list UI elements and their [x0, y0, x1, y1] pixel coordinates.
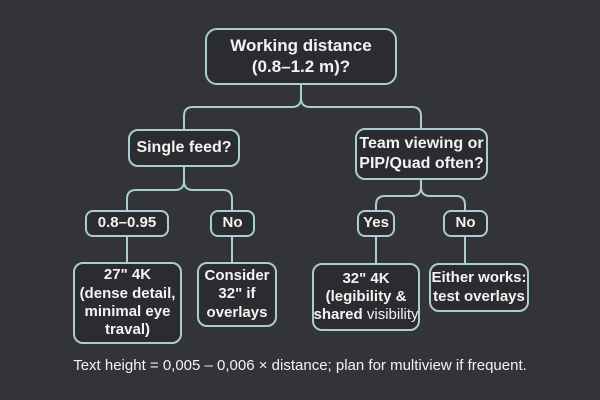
node-leaf-27-4k: 27" 4K (dense detail, minimal eye traval…: [73, 262, 182, 344]
node-leaf-consider-32-label: Consider 32" if overlays: [204, 267, 269, 322]
node-leaf-32-4k-label-light: visibility: [363, 306, 419, 323]
formula-caption: Text height = 0,005 – 0,006 × distance; …: [0, 357, 600, 374]
node-working-distance-label: Working distance (0.8–1.2 m)?: [230, 36, 371, 77]
node-team-yes-label: Yes: [363, 214, 389, 232]
node-range-08-095-label: 0.8–0.95: [98, 214, 156, 232]
node-team-viewing: Team viewing or PIP/Quad often?: [355, 128, 488, 180]
node-team-no-label: No: [456, 214, 476, 232]
node-leaf-consider-32: Consider 32" if overlays: [197, 262, 277, 327]
node-single-feed-label: Single feed?: [136, 138, 231, 158]
flowchart-canvas: Working distance (0.8–1.2 m)? Single fee…: [0, 0, 600, 400]
node-leaf-27-4k-label: 27" 4K (dense detail, minimal eye traval…: [80, 266, 176, 339]
node-team-yes: Yes: [357, 210, 395, 237]
node-leaf-either-works-label: Either works: test overlays: [431, 269, 526, 306]
node-leaf-either-works: Either works: test overlays: [429, 263, 529, 312]
node-team-no: No: [443, 210, 488, 237]
node-leaf-32-4k: 32" 4K (legibility & shared visibility: [312, 263, 420, 331]
node-single-feed-no-label: No: [223, 214, 243, 232]
node-range-08-095: 0.8–0.95: [85, 210, 169, 237]
node-team-viewing-label: Team viewing or PIP/Quad often?: [359, 134, 483, 173]
node-leaf-32-4k-label: 32" 4K (legibility & shared visibility: [313, 270, 418, 325]
node-single-feed-no: No: [210, 210, 255, 237]
node-single-feed: Single feed?: [128, 129, 240, 167]
node-working-distance: Working distance (0.8–1.2 m)?: [205, 28, 397, 85]
